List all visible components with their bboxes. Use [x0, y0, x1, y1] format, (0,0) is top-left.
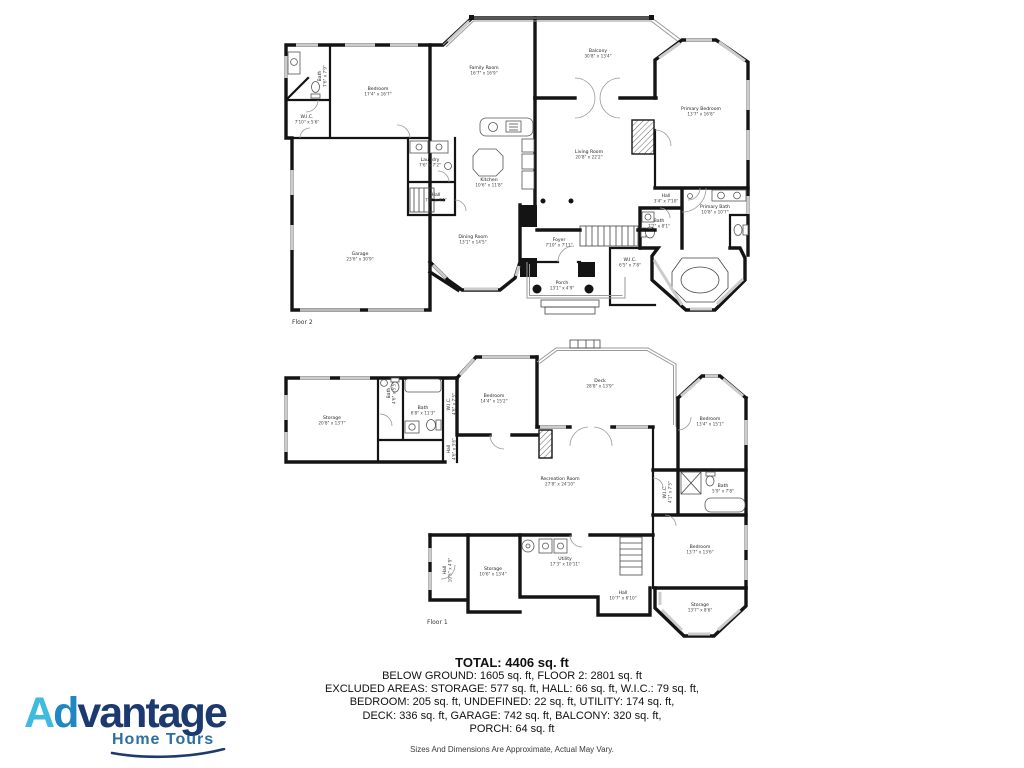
room-label: Living Room20'8" x 22'2"	[575, 149, 604, 160]
room-label: Balcony30'8" x 13'4"	[584, 48, 611, 59]
floor2-label: Floor 2	[292, 319, 313, 326]
room-label: Bedroom14'4" x 15'2"	[480, 393, 507, 404]
logo-letters-vantage: vantage	[77, 689, 226, 737]
logo-letter-d: d	[53, 689, 77, 737]
floorplan-drawing: Floor 2 Bedroom17'4" x 16'7"Bath7'6" x 7…	[0, 0, 1024, 768]
room-label: Primary Bath10'8" x 10'7"	[700, 204, 730, 215]
logo-tagline: Home Tours	[112, 731, 254, 749]
summary-total: TOTAL: 4406 sq. ft	[0, 656, 1024, 670]
room-label: Hall10'7" x 6'10"	[609, 590, 636, 601]
room-label: Foyer7'10" x 7'11"	[545, 237, 572, 248]
advantage-home-tours-logo: Advantage Home Tours	[24, 692, 254, 762]
floor2-plan: Floor 2 Bedroom17'4" x 16'7"Bath7'6" x 7…	[286, 15, 748, 326]
room-label: Hall4'6" x 3'6"	[446, 438, 457, 460]
summary-line: BELOW GROUND: 1605 sq. ft, FLOOR 2: 2801…	[0, 670, 1024, 683]
floor1-room-labels: Storage20'8" x 13'7"Bath4'6" x 5'5"Bath6…	[318, 378, 734, 613]
room-label: Recreation Room27'8" x 24'10"	[540, 476, 580, 487]
floorplan-page: { "branding": { "logo_a": "A", "logo_d":…	[0, 0, 1024, 768]
room-label: W.I.C.4'1" x 7'5"	[662, 481, 673, 503]
logo-wordmark: Advantage	[24, 692, 254, 734]
floor2-room-labels: Bedroom17'4" x 16'7"Bath7'6" x 7'9"W.I.C…	[295, 48, 730, 291]
room-label: Garage23'6" x 30'9"	[346, 251, 373, 262]
room-label: Storage13'7" x 8'6"	[688, 602, 713, 613]
room-label: Bedroom13'7" x 13'6"	[686, 544, 713, 555]
room-label: W.I.C.4'6" x 7'5"	[446, 393, 457, 415]
room-label: Bedroom13'4" x 15'1"	[696, 416, 723, 427]
room-label: Primary Bedroom13'7" x 16'8"	[681, 106, 722, 117]
floor1-label: Floor 1	[427, 619, 448, 626]
room-label: Hall3'4" x 7'10"	[654, 193, 679, 204]
room-label: W.I.C.6'5" x 7'8"	[619, 257, 641, 268]
room-label: Utility17'3" x 10'11"	[550, 556, 580, 567]
room-label: Porch13'1" x 4'9"	[550, 280, 575, 291]
room-label: Bedroom17'4" x 16'7"	[364, 86, 391, 97]
room-label: Family Room16'7" x 16'9"	[469, 65, 499, 76]
floor1-plan: Floor 1 Storage20'8" x 13'7"Bath4'6" x 5…	[286, 340, 746, 636]
room-label: Dining Room13'1" x 14'5"	[458, 234, 488, 245]
logo-letter-a: A	[24, 689, 53, 737]
room-label: W.I.C.7'10" x 5'6"	[295, 114, 320, 125]
room-label: Kitchen10'6" x 11'8"	[475, 177, 502, 188]
room-label: Bath6'8" x 11'3"	[411, 405, 436, 416]
logo-swoosh-icon	[110, 748, 230, 760]
room-label: Deck28'8" x 13'9"	[586, 378, 613, 389]
room-label: Bath5'9" x 7'8"	[712, 483, 734, 494]
room-label: Storage10'6" x 13'4"	[479, 566, 506, 577]
room-label: Bath4'6" x 5'5"	[386, 382, 397, 404]
room-label: Storage20'8" x 13'7"	[318, 415, 345, 426]
room-label: Laundry7'6" x 7'2"	[419, 157, 441, 168]
